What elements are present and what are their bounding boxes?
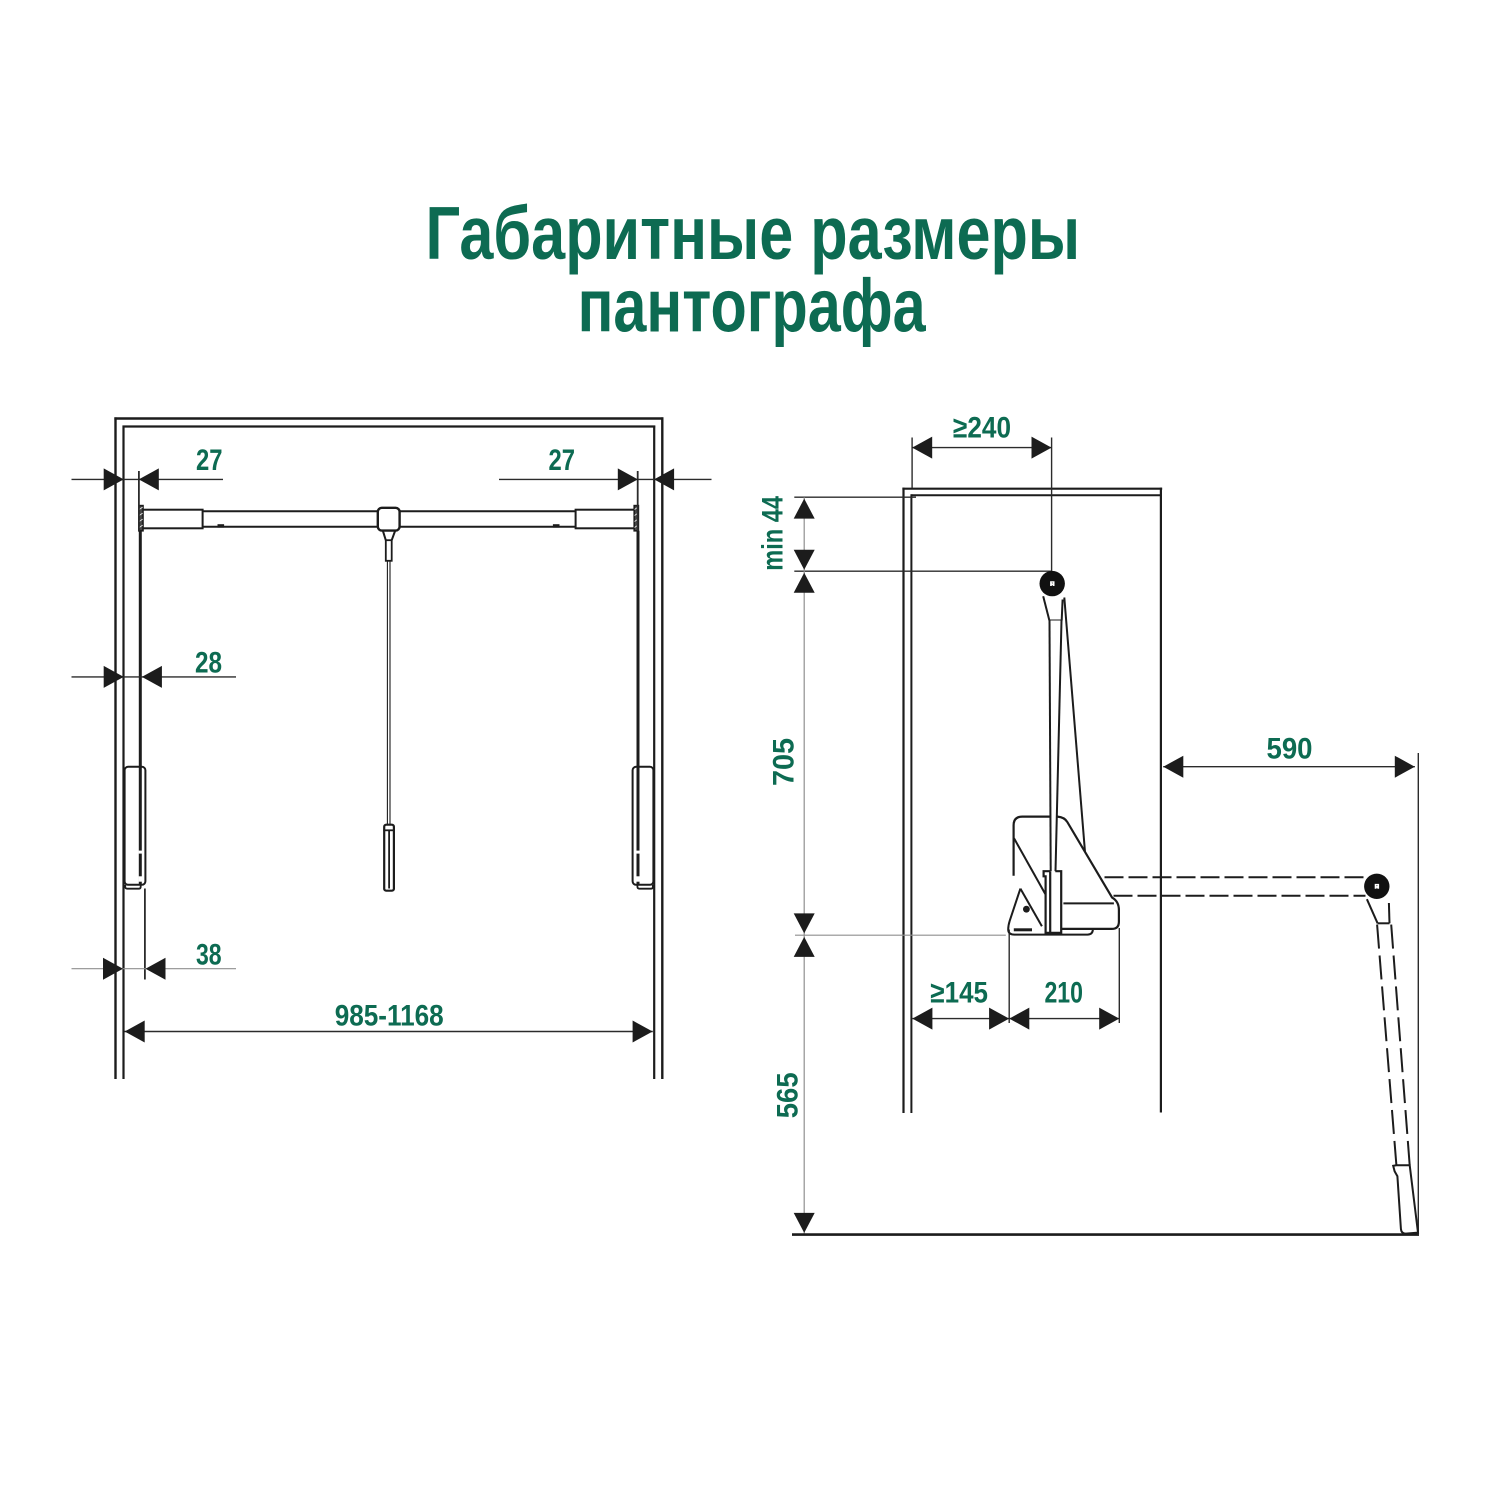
svg-text:пантографа: пантографа	[578, 264, 927, 348]
svg-text:565: 565	[771, 1072, 804, 1118]
svg-text:27: 27	[196, 444, 223, 477]
svg-text:min 44: min 44	[757, 496, 790, 571]
svg-text:985-1168: 985-1168	[335, 999, 444, 1032]
svg-text:705: 705	[767, 738, 800, 786]
svg-text:27: 27	[548, 444, 575, 477]
svg-text:≥240: ≥240	[953, 412, 1011, 445]
svg-text:28: 28	[195, 647, 222, 680]
svg-text:Габаритные размеры: Габаритные размеры	[426, 191, 1081, 275]
svg-text:210: 210	[1044, 976, 1083, 1009]
svg-text:≥145: ≥145	[930, 976, 988, 1009]
svg-text:590: 590	[1267, 732, 1313, 765]
svg-text:38: 38	[196, 938, 222, 971]
